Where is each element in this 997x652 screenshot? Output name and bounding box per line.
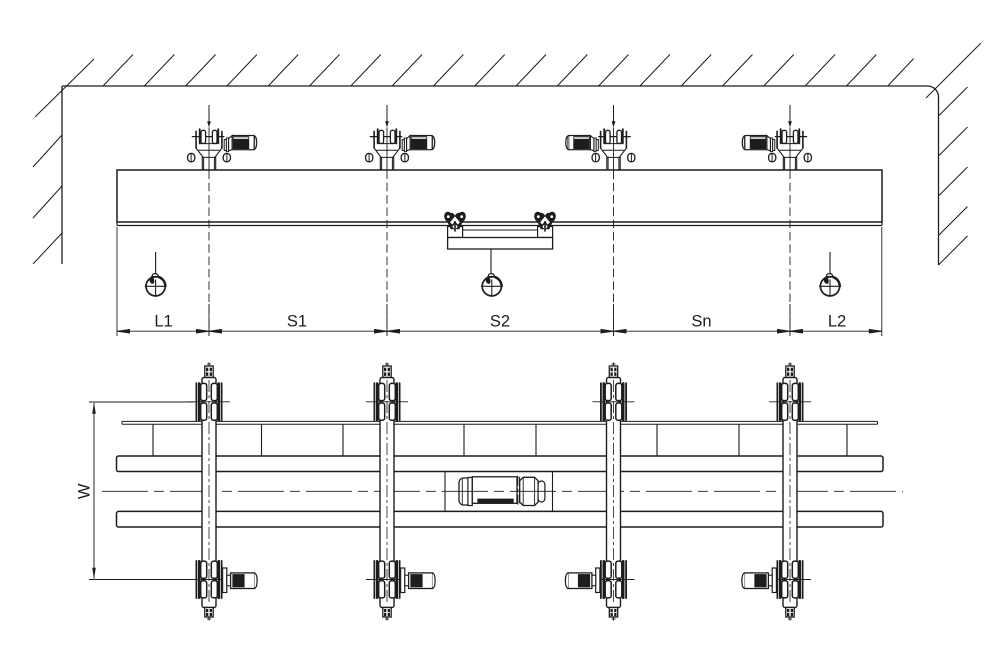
svg-text:S2: S2 [490, 313, 510, 331]
svg-text:W: W [76, 483, 94, 499]
svg-text:L2: L2 [828, 313, 846, 331]
svg-text:S1: S1 [287, 313, 307, 331]
svg-text:Sn: Sn [691, 313, 711, 331]
svg-text:L1: L1 [154, 313, 172, 331]
